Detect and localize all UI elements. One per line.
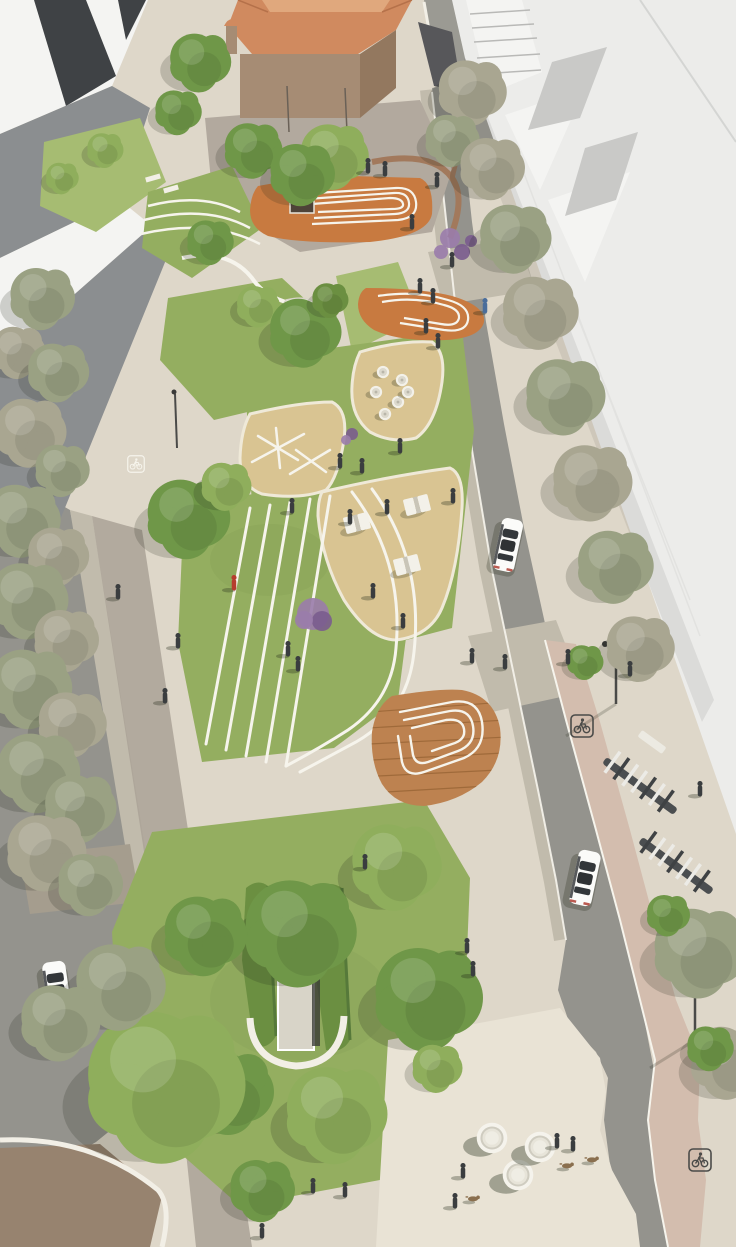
flower-patch [341,435,351,445]
rendering-canvas [0,0,736,1247]
flower-patch [454,244,470,260]
sand-area-sculpture [240,402,345,496]
sand-area-cones [352,342,443,440]
cupola-tower [226,26,237,54]
flower-patch [440,228,460,248]
church-roof-ridge [262,0,390,12]
sand-surface [352,342,443,440]
flower-patch [312,611,332,631]
flower-patch [434,245,448,259]
church-wall [240,54,360,118]
park-aerial-rendering [0,0,736,1247]
flower-patch [295,611,313,629]
lawn-shading [210,524,330,596]
